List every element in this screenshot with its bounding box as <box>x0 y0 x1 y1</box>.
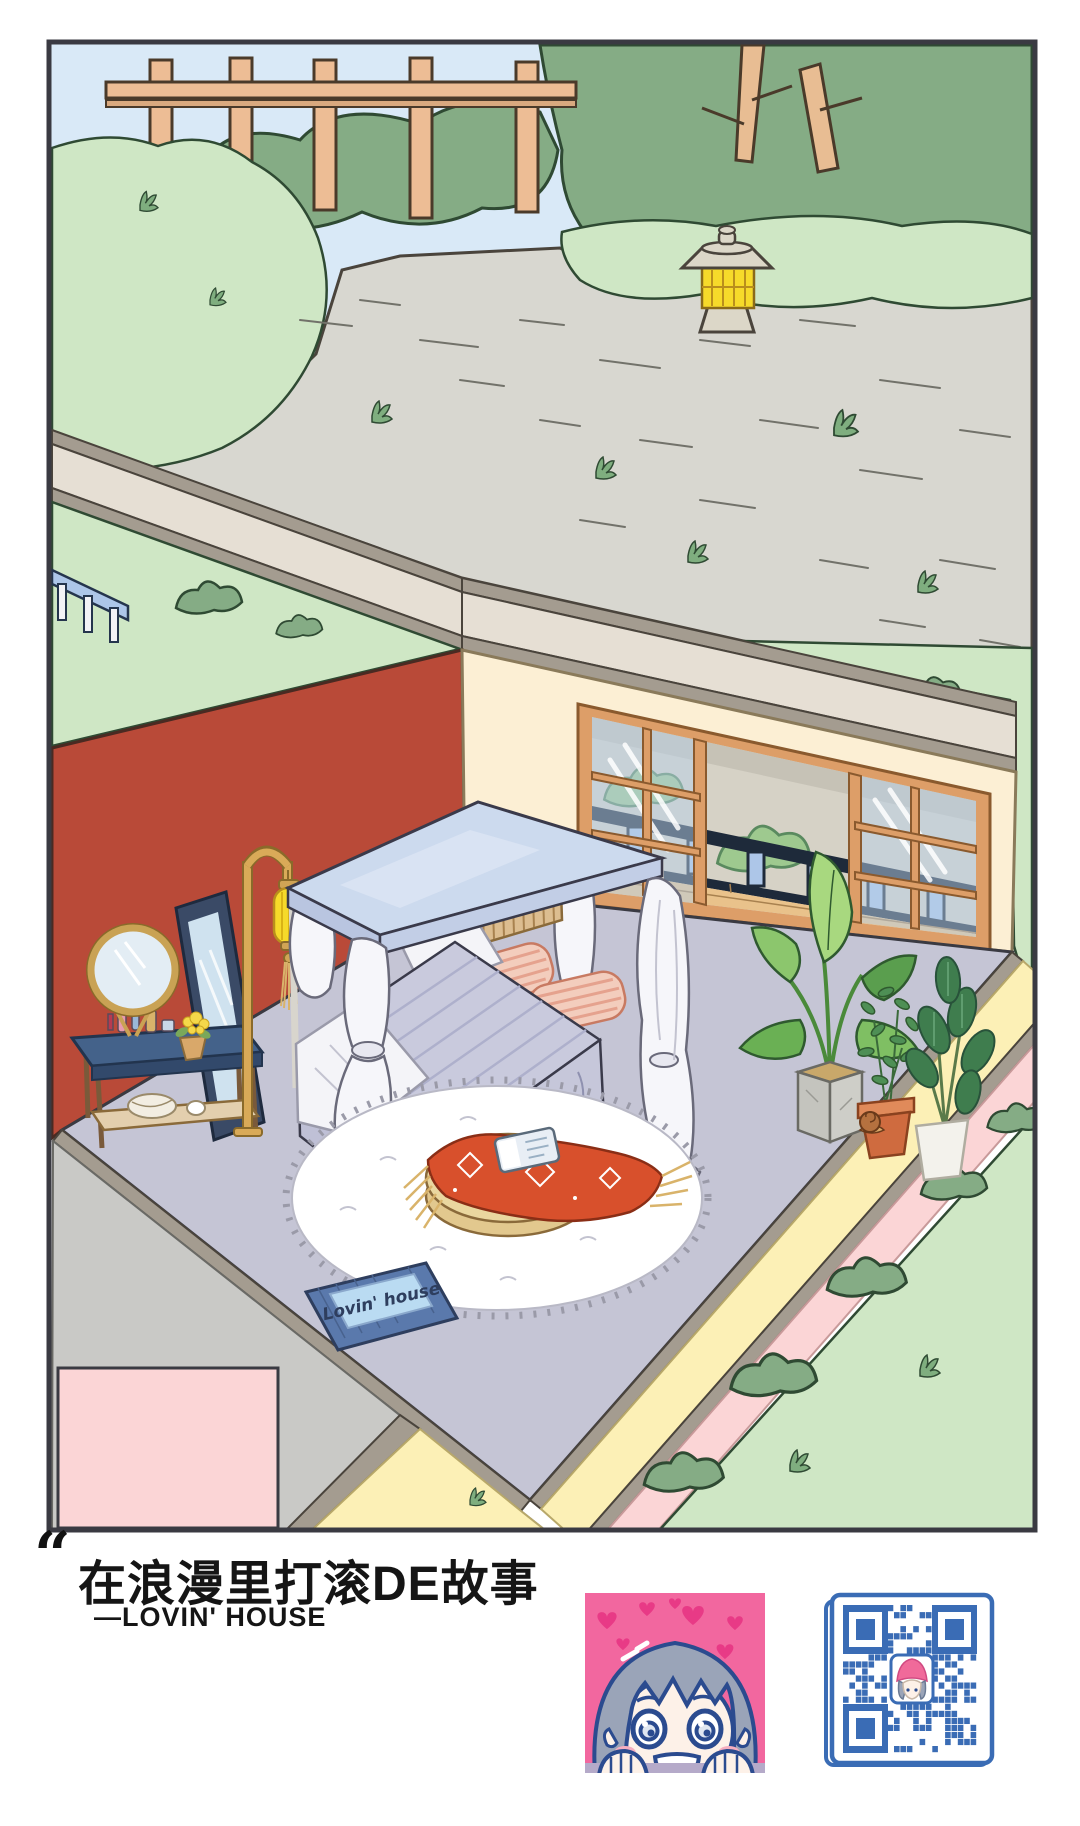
illustration-panel: Lovin' house <box>0 0 1080 1570</box>
quote-mark-icon: “ <box>34 1524 71 1588</box>
page: Lovin' house “ 在浪漫里打滚DE故事 —LOVIN' HOUSE <box>0 0 1080 1826</box>
caption-area: “ 在浪漫里打滚DE故事 —LOVIN' HOUSE <box>0 1530 1080 1826</box>
grass-right <box>561 216 1032 308</box>
caption-byline: —LOVIN' HOUSE <box>94 1602 326 1633</box>
pink-wall <box>58 1368 278 1528</box>
gray-planter <box>798 1072 830 1142</box>
cup <box>187 1101 205 1115</box>
qr-center-avatar <box>891 1655 933 1703</box>
curtain <box>344 938 389 1053</box>
eye <box>689 1711 721 1747</box>
white-pot <box>916 1120 968 1180</box>
author-avatar <box>585 1593 765 1773</box>
qr-code <box>823 1591 997 1771</box>
eye <box>633 1711 665 1747</box>
